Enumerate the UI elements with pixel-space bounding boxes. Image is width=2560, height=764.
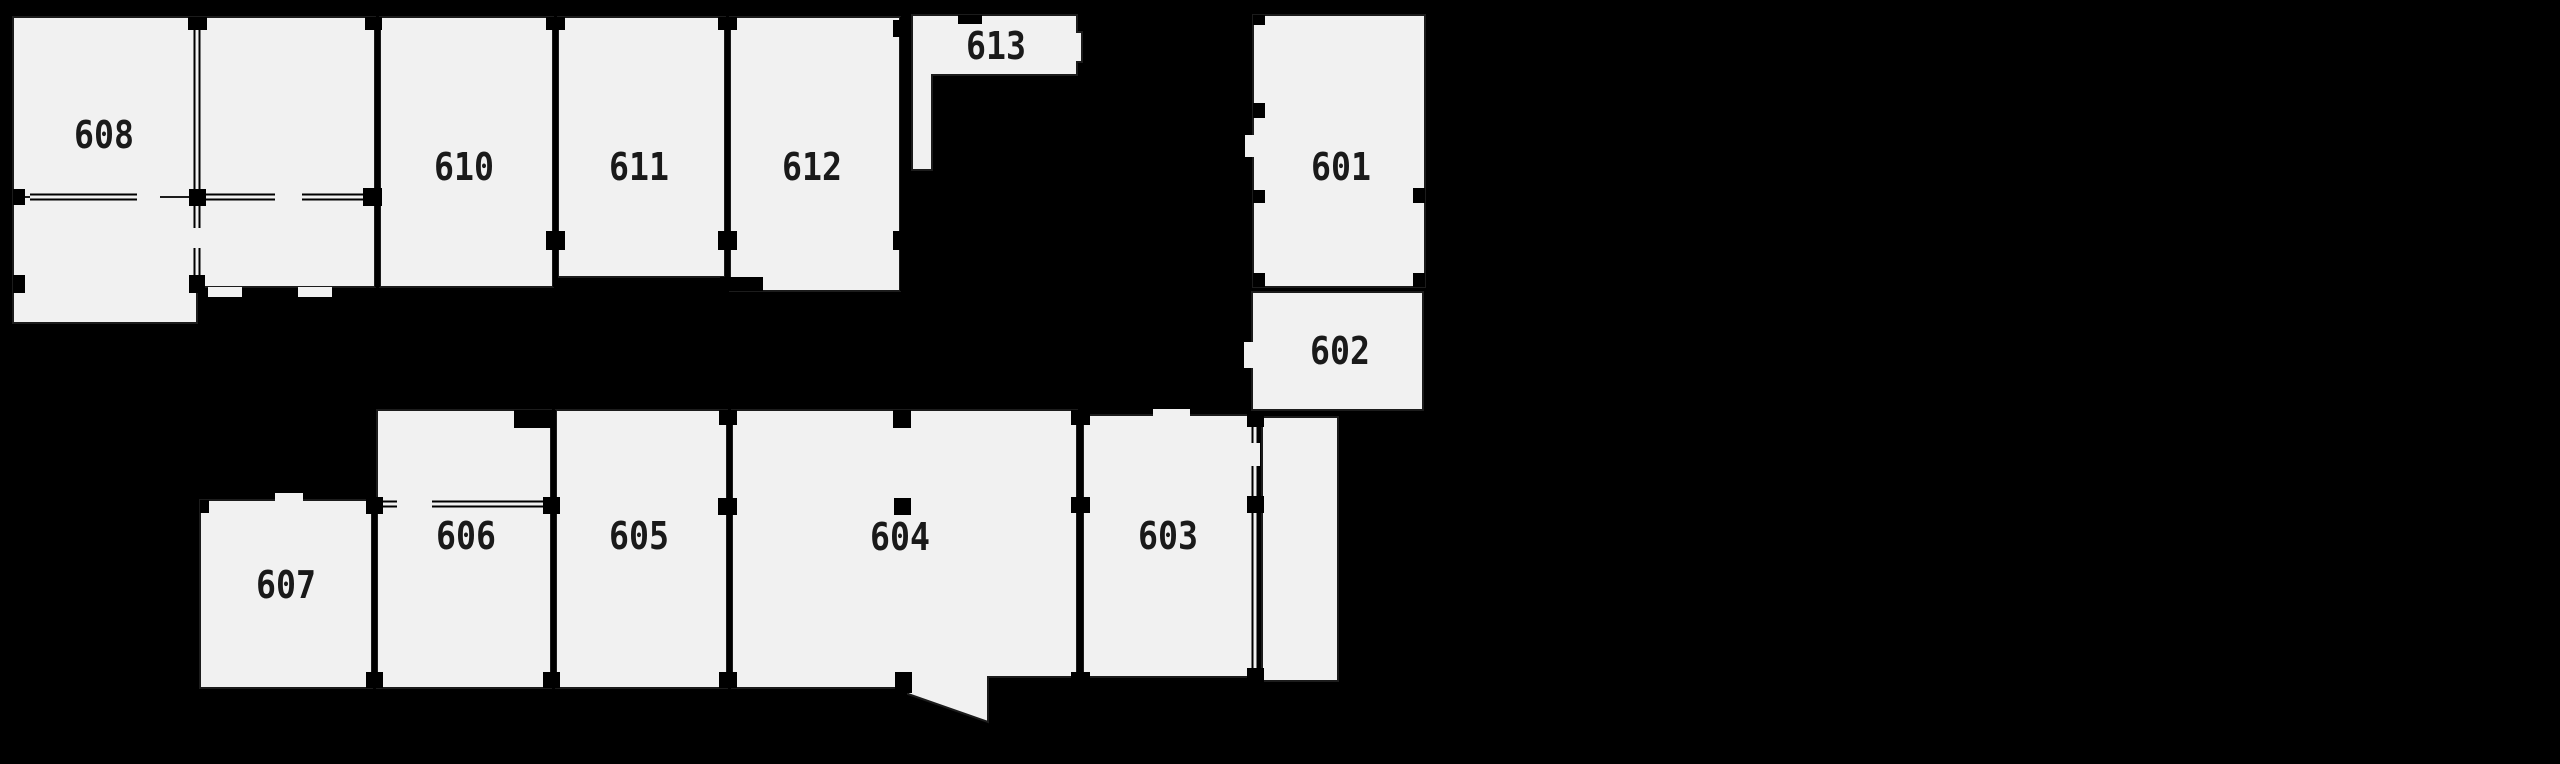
thin-wall-core [302,196,365,199]
thick-wall [1077,410,1083,688]
room-608 [13,17,197,197]
thick-wall [372,500,377,688]
wall-junction [718,498,737,515]
room-label-604: 604 [870,515,930,559]
room-label-601: 601 [1311,145,1371,189]
wall-junction [1247,411,1264,427]
wall-junction [958,15,982,24]
wall-junction [543,497,560,514]
wall-junction [366,672,383,688]
door-gap [193,228,201,248]
thin-wall-core [432,503,543,506]
door-gap [1251,443,1260,466]
wall-junction [189,189,206,206]
wall-tab-light [1245,135,1254,157]
room-label-613: 613 [966,24,1026,68]
wall-junction [366,497,383,514]
wall-junction [1071,410,1090,425]
wall-junction [546,231,565,250]
wall-junction [1413,188,1425,203]
wall-junction [1071,497,1090,513]
wall-junction [546,17,565,30]
wall-junction [895,672,912,693]
thick-wall [375,17,380,287]
wall-junction [363,188,382,206]
wall-tab-light [1244,342,1253,368]
room-label-612: 612 [782,145,842,189]
wall-junction [719,410,737,425]
wall-junction [1253,273,1265,287]
floor-plan: 608610611612613601602607606605604603 [0,0,2560,764]
room-label-610: 610 [434,145,494,189]
wall-tab-light [298,287,332,297]
wall-tab-light [208,287,242,297]
thin-wall-core [196,17,199,197]
wall-junction [893,410,911,428]
wall-junction [365,17,382,30]
thin-wall-core [196,248,199,278]
wall-junction [1253,15,1265,25]
wall-junction [719,672,737,688]
floor-plan-stage: 608610611612613601602607606605604603 [0,0,2560,764]
wall-junction [189,275,205,293]
wall-junction [514,410,551,428]
wall-junction [1247,496,1264,513]
thin-wall-core [196,205,199,228]
thick-wall [727,410,732,688]
wall-junction [1413,273,1425,287]
wall-junction [1071,672,1090,688]
wall-junction [718,17,737,30]
thin-wall-core [30,196,137,199]
wall-junction [543,672,560,688]
room-label-608: 608 [74,113,134,157]
wall-junction [200,500,209,513]
thick-wall [551,410,556,688]
wall-junction [188,17,207,30]
wall-junction [893,20,910,37]
room-label-605: 605 [609,514,669,558]
door-gap [137,192,160,201]
room-unit-a [197,17,375,287]
room-label-611: 611 [609,145,669,189]
room-label-602: 602 [1310,329,1370,373]
thin-wall-core [1254,427,1257,443]
wall-junction [1253,190,1265,203]
wall-tab-light [1153,409,1190,416]
room-unit-b [13,197,197,323]
wall-junction [13,189,25,205]
wall-junction [720,277,763,291]
wall-junction [893,231,910,250]
wall-tab-light [275,493,303,501]
room-unit-c [1262,417,1338,681]
wall-junction [13,275,25,293]
thin-wall-core [205,196,275,199]
wall-junction [1247,668,1264,682]
room-label-603: 603 [1138,514,1198,558]
room-label-607: 607 [256,563,316,607]
room-label-606: 606 [436,514,496,558]
wall-junction [894,498,911,515]
wall-junction [718,231,737,250]
wall-junction [1253,103,1265,118]
